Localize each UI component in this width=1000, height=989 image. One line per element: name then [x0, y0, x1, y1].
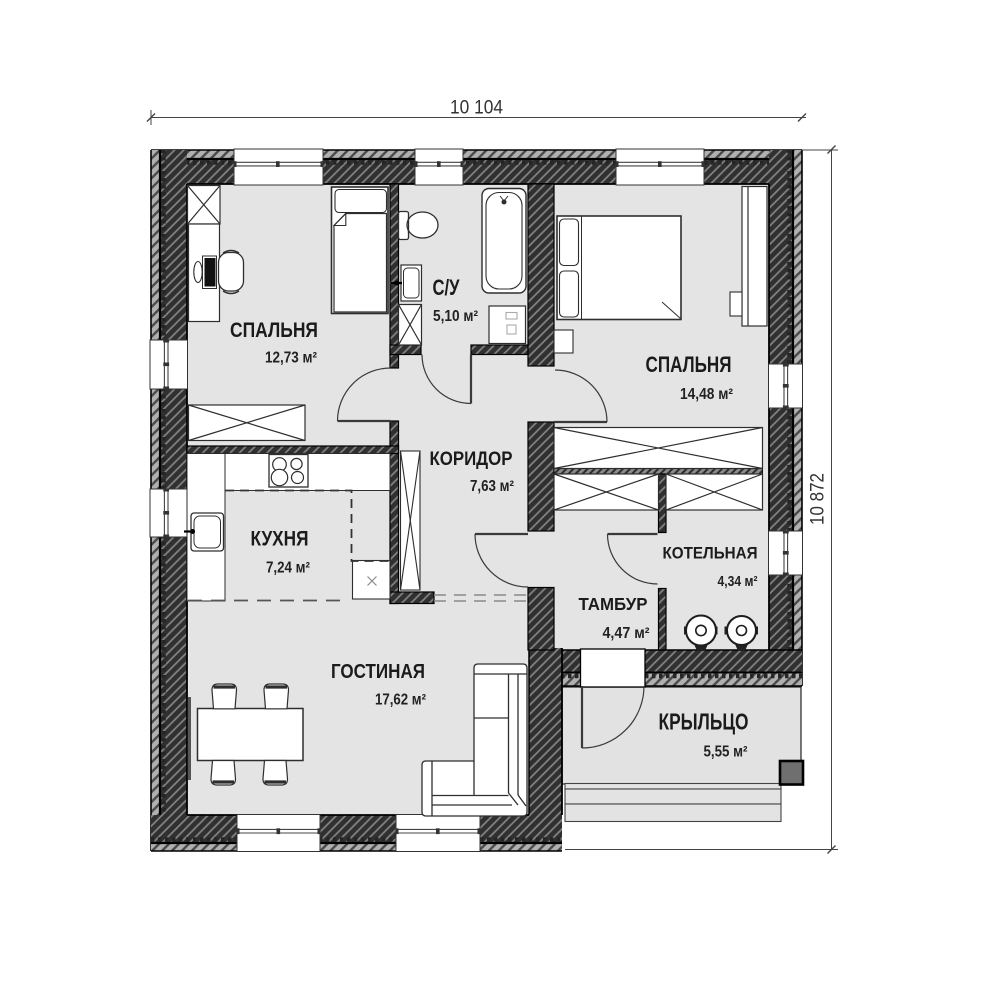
svg-text:КУХНЯ: КУХНЯ [251, 528, 309, 551]
svg-text:12,73 м²: 12,73 м² [265, 350, 317, 367]
svg-text:КОТЕЛЬНАЯ: КОТЕЛЬНАЯ [663, 544, 758, 563]
svg-text:5,10 м²: 5,10 м² [433, 308, 478, 325]
svg-text:14,48 м²: 14,48 м² [680, 386, 733, 403]
svg-text:КРЫЛЬЦО: КРЫЛЬЦО [659, 709, 749, 735]
svg-text:СПАЛЬНЯ: СПАЛЬНЯ [230, 319, 318, 342]
svg-text:5,55 м²: 5,55 м² [704, 744, 748, 761]
svg-text:КОРИДОР: КОРИДОР [430, 448, 513, 470]
svg-text:10 104: 10 104 [450, 98, 503, 119]
svg-text:ТАМБУР: ТАМБУР [579, 594, 648, 614]
svg-text:10 872: 10 872 [808, 473, 829, 525]
svg-text:17,62 м²: 17,62 м² [375, 692, 426, 709]
svg-text:4,34 м²: 4,34 м² [718, 574, 758, 590]
svg-text:7,63 м²: 7,63 м² [470, 478, 514, 495]
svg-text:СПАЛЬНЯ: СПАЛЬНЯ [646, 352, 732, 377]
svg-text:7,24 м²: 7,24 м² [266, 560, 310, 577]
svg-text:4,47 м²: 4,47 м² [603, 625, 650, 642]
svg-text:С/У: С/У [433, 275, 460, 300]
svg-text:ГОСТИНАЯ: ГОСТИНАЯ [331, 660, 425, 683]
